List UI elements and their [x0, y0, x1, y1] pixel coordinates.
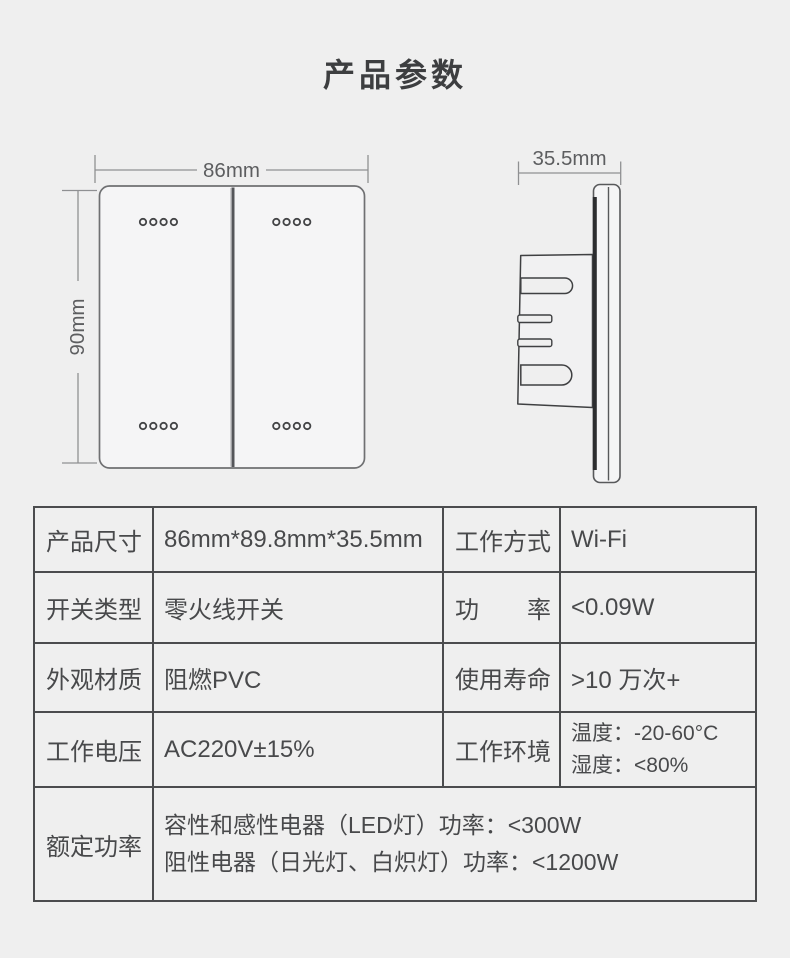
- page-title: 产品参数: [0, 50, 790, 96]
- spec-label-material: 外观材质: [35, 644, 154, 713]
- spec-value-working-voltage: AC220V±15%: [154, 713, 444, 788]
- side-faceplate-outline: [594, 185, 621, 483]
- side-body-slot-bottom: [521, 365, 572, 385]
- spec-label-rated-power: 额定功率: [35, 788, 154, 900]
- spec-label-product-size: 产品尺寸: [35, 508, 154, 573]
- width-dimension-label: 86mm: [203, 159, 260, 182]
- switch-side-view: 35.5mm: [518, 147, 621, 483]
- spec-value-rated-power: 容性和感性电器（LED灯）功率：<300W 阻性电器（日光灯、白炽灯）功率：<1…: [154, 788, 755, 900]
- spec-value-product-size: 86mm*89.8mm*35.5mm: [154, 508, 444, 573]
- spec-value-material: 阻燃PVC: [154, 644, 444, 713]
- height-dimension-label: 90mm: [66, 299, 89, 356]
- side-body-tab-upper: [518, 315, 552, 323]
- rated-power-resistive: 阻性电器（日光灯、白炽灯）功率：<1200W: [164, 844, 618, 881]
- spec-table: 产品尺寸 86mm*89.8mm*35.5mm 工作方式 Wi-Fi 开关类型 …: [33, 506, 757, 902]
- depth-dimension-label: 35.5mm: [532, 147, 606, 170]
- switch-front-view: 86mm 90mm: [62, 155, 368, 468]
- spec-value-lifespan: >10 万次+: [561, 644, 755, 713]
- environment-temperature: 温度：-20-60°C: [571, 718, 718, 750]
- spec-value-switch-type: 零火线开关: [154, 573, 444, 644]
- side-body-tab-lower: [518, 339, 552, 347]
- spec-label-working-voltage: 工作电压: [35, 713, 154, 788]
- rated-power-capacitive: 容性和感性电器（LED灯）功率：<300W: [164, 807, 581, 844]
- spec-label-power: 功 率: [444, 573, 561, 644]
- spec-label-switch-type: 开关类型: [35, 573, 154, 644]
- side-body-slot-top: [521, 278, 573, 294]
- spec-value-working-mode: Wi-Fi: [561, 508, 755, 573]
- spec-label-working-environment: 工作环境: [444, 713, 561, 788]
- dimension-diagrams: 86mm 90mm: [0, 130, 790, 500]
- environment-humidity: 湿度：<80%: [571, 750, 688, 782]
- spec-value-working-environment: 温度：-20-60°C 湿度：<80%: [561, 713, 755, 788]
- product-spec-sheet: 产品参数: [0, 0, 790, 958]
- spec-value-power: <0.09W: [561, 573, 755, 644]
- spec-label-lifespan: 使用寿命: [444, 644, 561, 713]
- spec-label-working-mode: 工作方式: [444, 508, 561, 573]
